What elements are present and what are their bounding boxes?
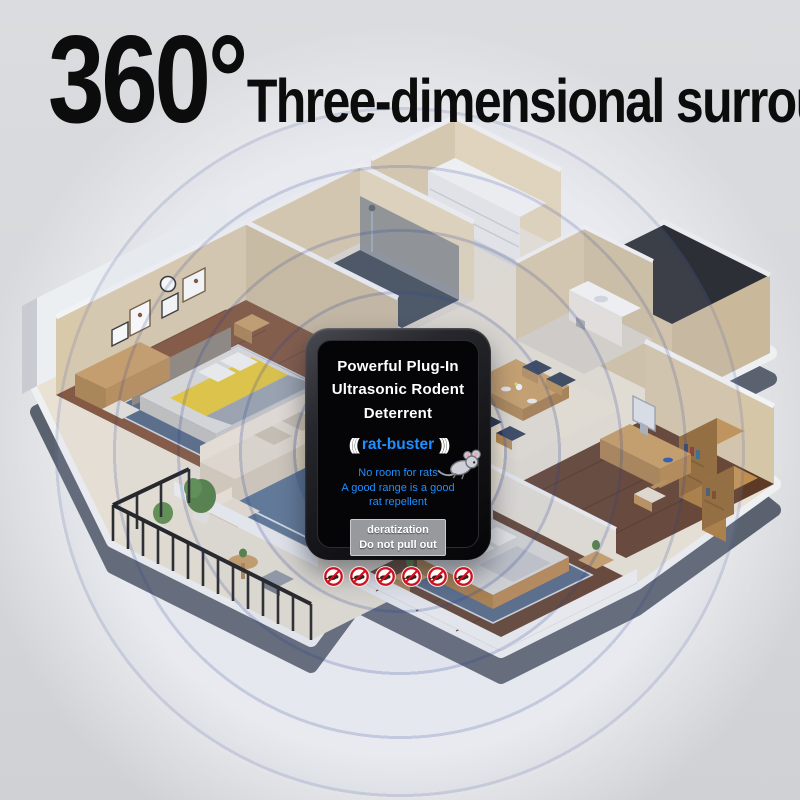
no-rodent-icon — [375, 566, 396, 587]
device-screen: Powerful Plug-In Ultrasonic Rodent Deter… — [317, 340, 479, 548]
device-title-line2: Ultrasonic Rodent — [332, 378, 465, 401]
promo-image: 360°Three-dimensional surround Powerful … — [0, 0, 800, 800]
headline-text: Three-dimensional surround — [247, 71, 800, 132]
sound-wave-left-icon: ((( — [349, 436, 357, 453]
no-rodent-icon — [323, 566, 344, 587]
no-rodent-icon — [427, 566, 448, 587]
label-line2: Do not pull out — [359, 538, 437, 552]
device-title-line3: Deterrent — [332, 402, 465, 425]
ultrasonic-device: Powerful Plug-In Ultrasonic Rodent Deter… — [305, 328, 491, 560]
device-title: Powerful Plug-In Ultrasonic Rodent Deter… — [332, 355, 465, 425]
slogan-line2: A good range is a good — [341, 481, 454, 496]
headline: 360°Three-dimensional surround — [48, 18, 671, 142]
mouse-icon — [435, 442, 481, 480]
no-rodent-icon — [349, 566, 370, 587]
label-line1: deratization — [359, 523, 437, 537]
brand-row: ((( rat-buster ))) — [349, 436, 447, 454]
slogan-line3: rat repellent — [341, 495, 454, 510]
brand-name: rat-buster — [362, 436, 434, 454]
headline-degree: 360° — [48, 18, 245, 142]
no-rodent-icon — [401, 566, 422, 587]
deratization-label: deratization Do not pull out — [350, 519, 446, 556]
no-rodent-icon — [453, 566, 474, 587]
device-title-line1: Powerful Plug-In — [332, 355, 465, 378]
no-rodent-badges — [323, 566, 474, 587]
